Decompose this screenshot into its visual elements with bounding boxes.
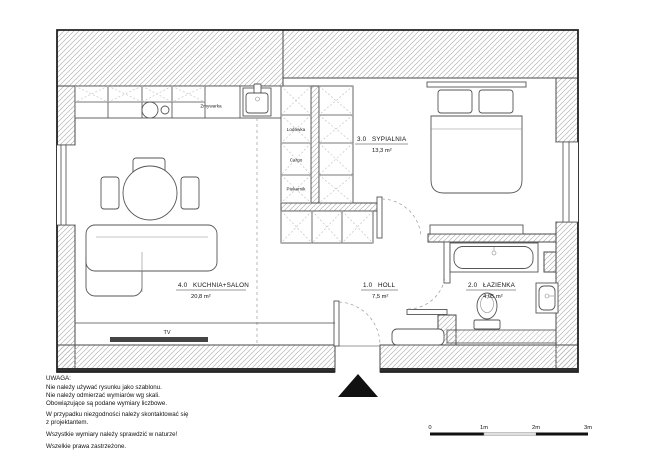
room-name: SYPIALNIA — [372, 136, 407, 143]
room-name: HOLL — [378, 282, 396, 289]
window-right — [556, 142, 578, 222]
tv-cabinet — [110, 337, 208, 342]
room-area: 20,8 m² — [191, 294, 211, 300]
note-line: z projektantem. — [46, 419, 89, 426]
room-label-bedroom: 3.0 SYPIALNIA 13,3 m² — [355, 136, 408, 154]
bathroom-door — [407, 278, 447, 315]
kitchen-unit — [75, 84, 283, 344]
room-label-hall: 1.0 HOLL 7,5 m² — [361, 282, 398, 300]
room-number: 4.0 — [178, 282, 188, 289]
fridge-label: Lodówka — [287, 127, 306, 132]
tv-label: TV — [163, 330, 170, 336]
cargo-label: Cargo — [290, 158, 303, 163]
window-left — [57, 145, 75, 225]
sink-icon — [243, 84, 271, 116]
washbasin-icon — [536, 283, 558, 313]
room-label-bathroom: 2.0 ŁAZIENKA 4,05 m² — [466, 282, 516, 300]
room-number: 2.0 — [468, 282, 478, 289]
chair — [181, 177, 199, 209]
bed — [427, 82, 526, 193]
dining-set — [101, 158, 199, 220]
pillow — [479, 90, 513, 113]
note-line: Nie należy używać rysunku jako szablonu. — [46, 384, 162, 391]
room-area: 7,5 m² — [372, 294, 388, 300]
notes-block: UWAGA: Nie należy używać rysunku jako sz… — [46, 375, 189, 450]
scale-tick-1m: 1m — [480, 425, 488, 431]
floor-plan: TV Zmywarka Lodówka Cargo Piekarnik 4.0 … — [0, 0, 651, 460]
scale-tick-0: 0 — [428, 425, 431, 431]
note-line: Wszystkie wymiary należy sprawdzić w nat… — [46, 431, 178, 438]
scale-tick-2m: 2m — [532, 425, 540, 431]
notes-title: UWAGA: — [46, 375, 71, 382]
tall-cabinets — [281, 86, 311, 203]
dining-table — [123, 166, 177, 220]
tv-unit: TV — [75, 323, 335, 342]
scale-segment-0-1 — [430, 433, 484, 436]
oven-label: Piekarnik — [287, 187, 307, 192]
note-line: Wszelkie prawa zastrzeżone. — [46, 443, 126, 450]
room-number: 1.0 — [363, 282, 373, 289]
room-number: 3.0 — [357, 136, 367, 143]
note-line: W przypadku niezgodności należy skontakt… — [46, 411, 189, 418]
scale-bar: 0 1m 2m 3m — [428, 425, 592, 436]
entrance-door — [334, 301, 380, 346]
room-label-kitchen-salon: 4.0 KUCHNIA+SALON 20,8 m² — [176, 282, 249, 300]
bedroom-dresser — [430, 225, 523, 234]
scale-tick-3m: 3m — [584, 425, 592, 431]
pillow — [438, 90, 472, 113]
bedroom-wardrobe — [319, 86, 353, 203]
room-name: KUCHNIA+SALON — [193, 282, 249, 289]
drawing-sheet: TV Zmywarka Lodówka Cargo Piekarnik 4.0 … — [0, 0, 651, 460]
room-area: 4,05 m² — [483, 294, 503, 300]
bedroom-door — [377, 197, 421, 238]
dishwasher-label: Zmywarka — [200, 104, 222, 109]
entrance-arrow — [338, 374, 378, 397]
chair — [101, 177, 119, 209]
north-triangle-icon — [338, 374, 378, 397]
note-line: Nie należy odmierzać wymiarów wg skali. — [46, 392, 160, 399]
hall-wardrobe — [281, 211, 373, 243]
note-line: Obowiązujące są podane wymiary liczbowe. — [46, 400, 167, 407]
room-area: 13,3 m² — [372, 148, 392, 154]
scale-segment-1-2 — [484, 433, 536, 436]
scale-segment-2-3 — [536, 433, 588, 436]
room-name: ŁAZIENKA — [483, 282, 516, 289]
hall-bench — [392, 329, 444, 345]
headboard — [427, 82, 526, 87]
bathtub-icon — [450, 243, 538, 272]
